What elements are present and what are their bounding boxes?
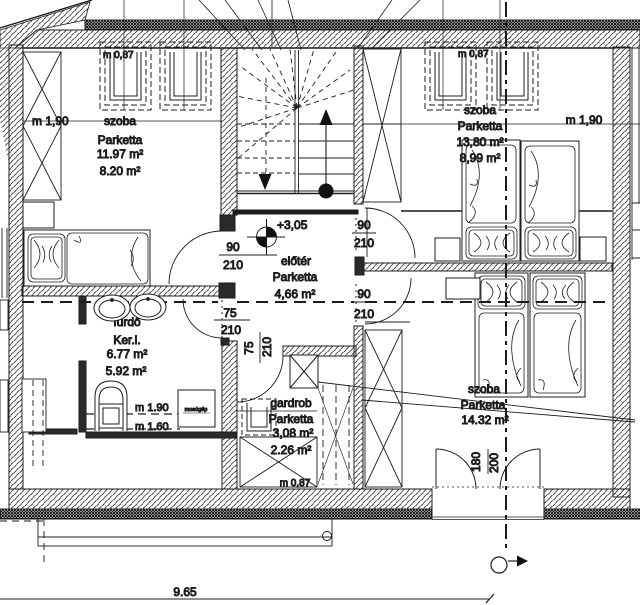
- svg-text:Parketta: Parketta: [273, 270, 318, 284]
- svg-text:m 0,87: m 0,87: [458, 49, 489, 60]
- svg-text:14.32 m²: 14.32 m²: [461, 413, 508, 427]
- svg-text:75: 75: [223, 306, 237, 320]
- svg-text:m 1.60: m 1.60: [135, 421, 169, 433]
- svg-text:210: 210: [223, 258, 243, 272]
- svg-text:75: 75: [242, 341, 256, 355]
- svg-text:210: 210: [354, 307, 374, 321]
- svg-text:szoba: szoba: [464, 103, 496, 117]
- svg-text:Parketta: Parketta: [461, 398, 506, 412]
- svg-text:210: 210: [221, 323, 241, 337]
- svg-text:210: 210: [260, 337, 274, 357]
- svg-text:13,80 m²: 13,80 m²: [456, 135, 503, 149]
- svg-text:90: 90: [357, 287, 371, 301]
- svg-text:6.77 m²: 6.77 m²: [107, 347, 148, 361]
- svg-text:11.97 m²: 11.97 m²: [97, 147, 143, 161]
- svg-text:90: 90: [357, 218, 371, 232]
- svg-text:előtér: előtér: [281, 254, 311, 268]
- svg-text:gardrob: gardrob: [270, 396, 312, 410]
- svg-text:90: 90: [226, 240, 240, 254]
- svg-text:m 1,90: m 1,90: [32, 114, 69, 128]
- svg-text:4,66 m²: 4,66 m²: [275, 287, 316, 301]
- svg-text:180: 180: [469, 452, 483, 472]
- svg-text:210: 210: [354, 236, 374, 250]
- svg-text:m 1,90: m 1,90: [566, 113, 603, 127]
- svg-text:m 1.90: m 1.90: [135, 402, 169, 414]
- svg-text:Ker.l.: Ker.l.: [113, 333, 140, 347]
- svg-text:5.92 m²: 5.92 m²: [106, 364, 147, 378]
- svg-text:200: 200: [487, 453, 501, 473]
- svg-text:mosógép: mosógép: [185, 407, 208, 413]
- svg-text:8,99 m²: 8,99 m²: [460, 151, 501, 165]
- svg-text:8.20 m²: 8.20 m²: [100, 164, 141, 178]
- svg-text:+3,05: +3,05: [277, 218, 308, 232]
- svg-text:m 0,87: m 0,87: [103, 50, 134, 61]
- svg-text:3,08 m²: 3,08 m²: [273, 426, 314, 440]
- svg-text:szoba: szoba: [104, 114, 136, 128]
- svg-text:Parketta: Parketta: [458, 119, 503, 133]
- svg-text:Parketta: Parketta: [98, 133, 143, 147]
- svg-text:szoba: szoba: [468, 382, 500, 396]
- svg-text:9.65: 9.65: [173, 585, 197, 599]
- svg-text:Parketta: Parketta: [269, 412, 314, 426]
